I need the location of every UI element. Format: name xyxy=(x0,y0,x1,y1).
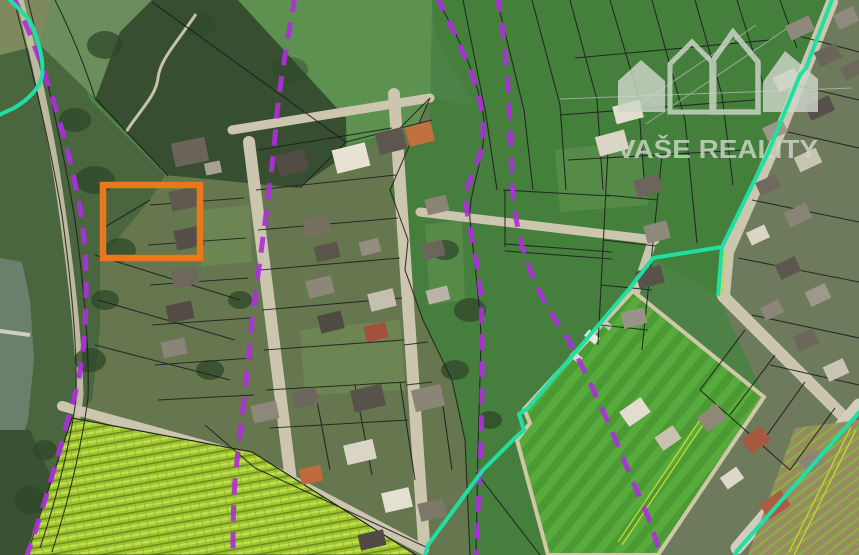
satellite-map: VAŠE REALITY xyxy=(0,0,859,555)
map-canvas[interactable]: VAŠE REALITY xyxy=(0,0,859,555)
brand-name: VAŠE REALITY xyxy=(617,134,818,164)
